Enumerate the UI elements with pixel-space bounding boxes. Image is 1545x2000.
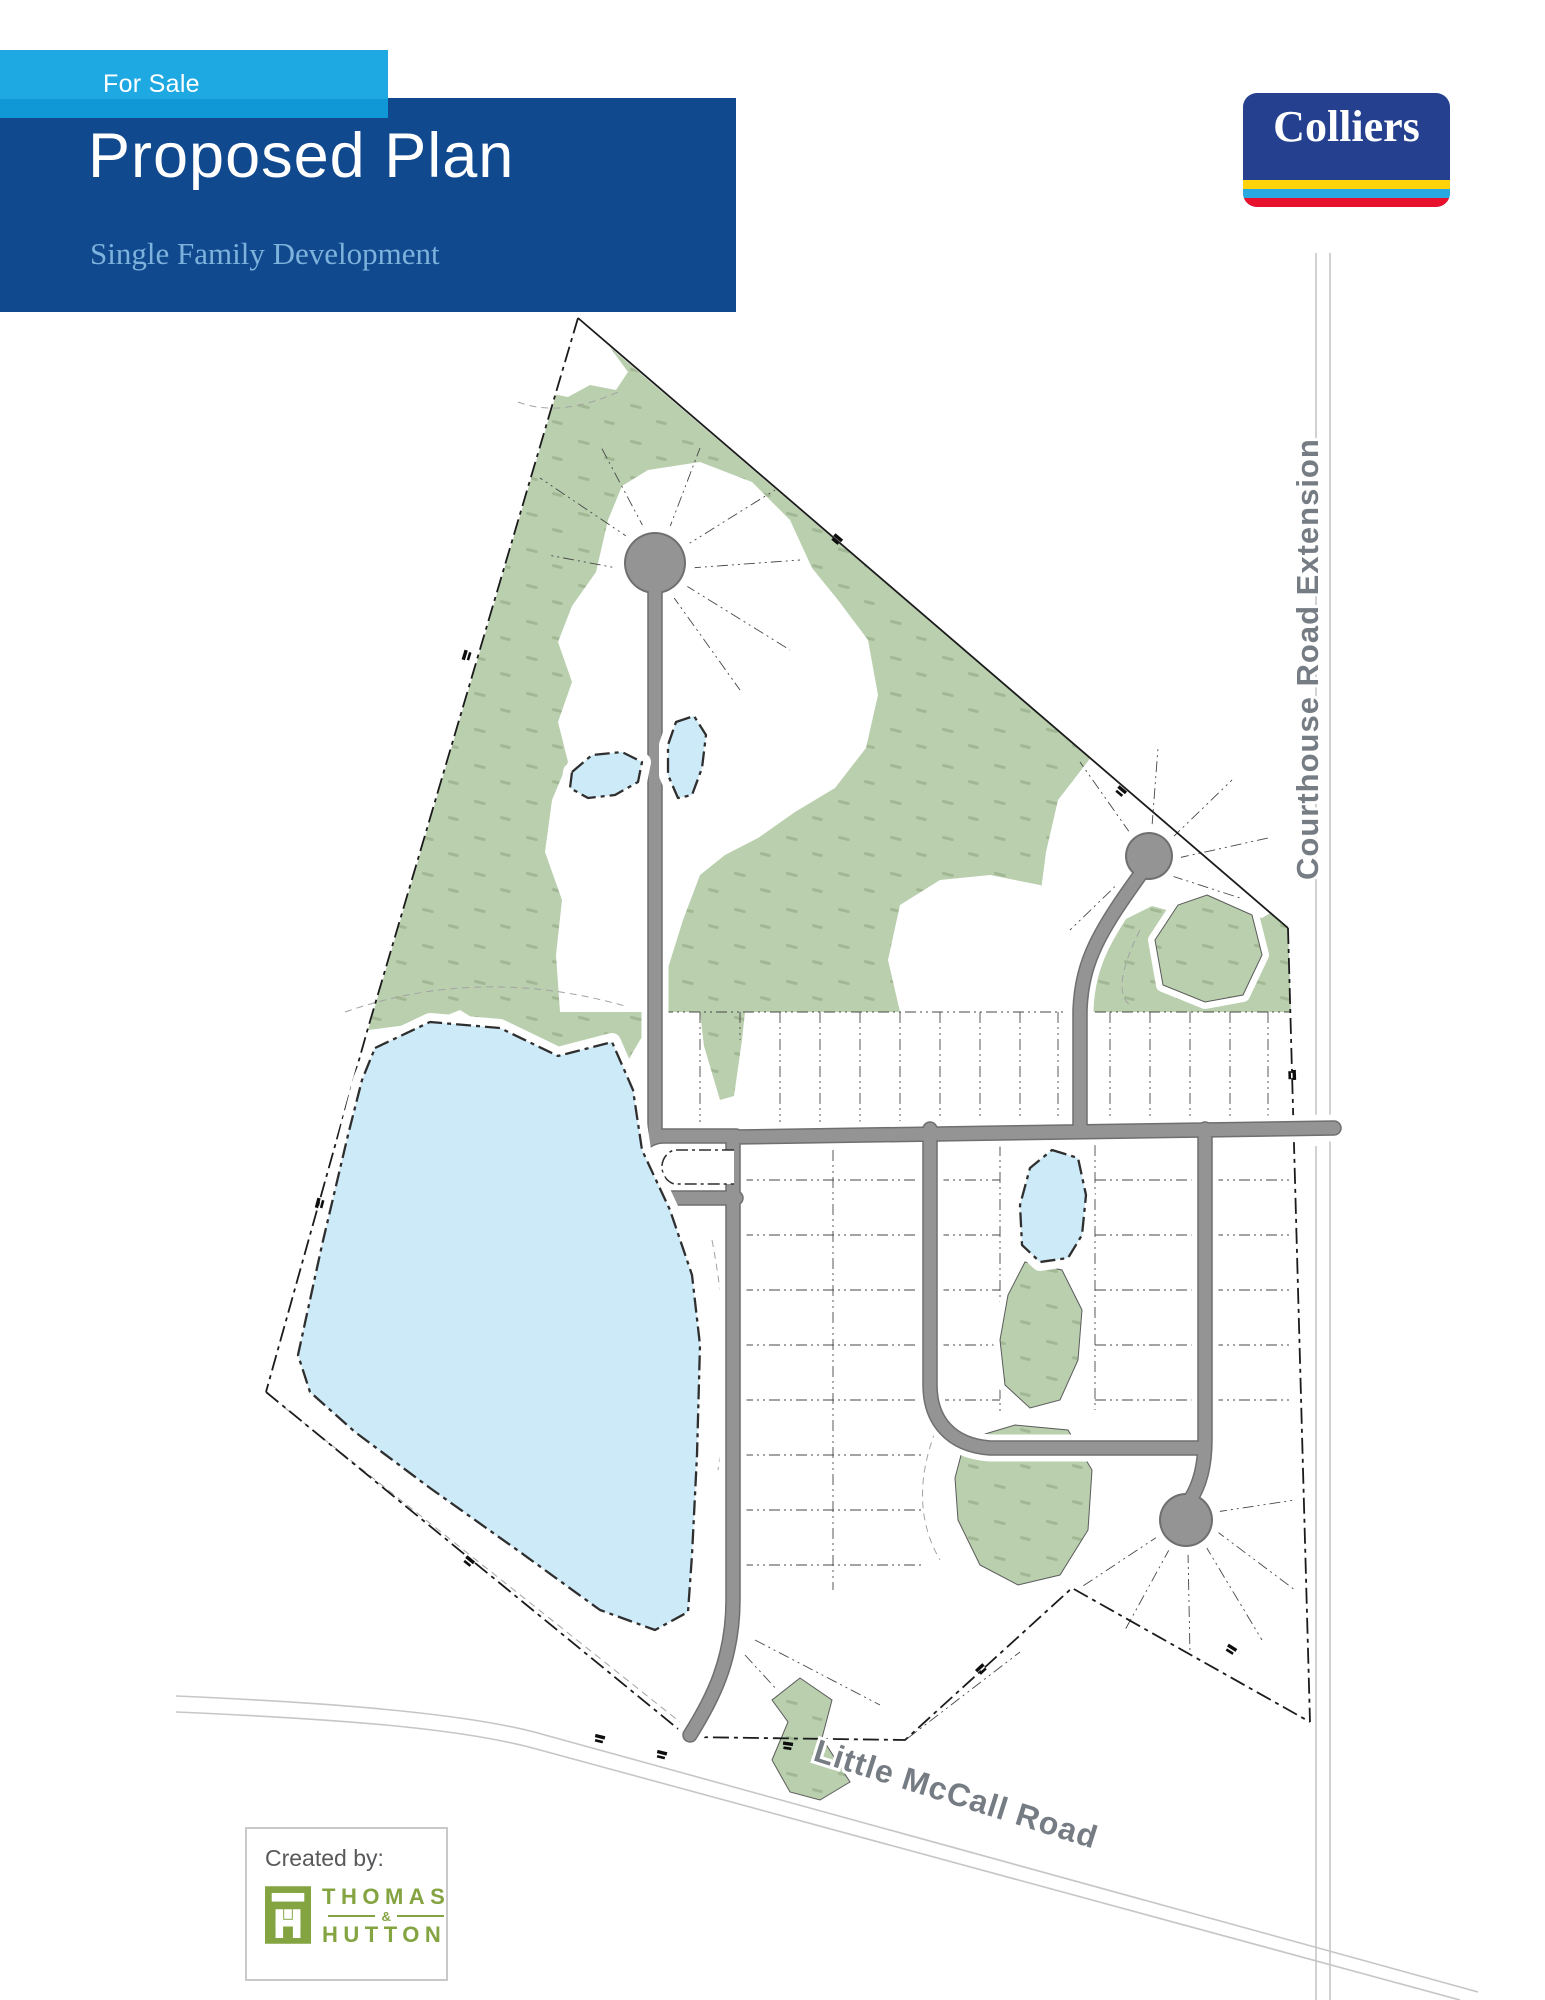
green-blobs: [772, 895, 1262, 1800]
ampersand-row: &: [322, 1909, 450, 1923]
for-sale-ribbon: For Sale: [0, 50, 388, 118]
for-sale-label: For Sale: [103, 70, 200, 99]
stripe-red: [1243, 198, 1450, 207]
thomas-label: THOMAS: [322, 1886, 450, 1908]
colliers-logo: Colliers: [1243, 93, 1450, 207]
turnaround-island: [662, 1150, 734, 1184]
pond-middle: [1020, 1150, 1086, 1262]
colliers-wordmark: Colliers: [1243, 101, 1450, 152]
page-title: Proposed Plan: [88, 120, 514, 192]
little-mccall-road-label: Little McCall Road: [810, 1732, 1103, 1855]
apex-notch: [509, 318, 628, 400]
hutton-label: HUTTON: [322, 1924, 450, 1946]
open-space-green-area: [368, 318, 1292, 1140]
courthouse-road-label: Courthouse Road Extension: [1290, 438, 1325, 880]
stripe-yellow: [1243, 180, 1450, 189]
thomas-hutton-monogram-icon: [265, 1886, 311, 1944]
created-by-label: Created by:: [265, 1845, 446, 1872]
cul-de-sac-northeast: [1127, 834, 1171, 878]
created-by-box: Created by: THOMAS & HUTTON: [245, 1827, 448, 1981]
cul-de-sac-north: [626, 534, 684, 592]
thomas-hutton-logo: THOMAS & HUTTON: [265, 1886, 446, 1946]
page-subtitle: Single Family Development: [90, 236, 440, 272]
colliers-stripes: [1243, 180, 1450, 207]
stripe-light-blue: [1243, 189, 1450, 198]
cul-de-sac-south: [1161, 1495, 1211, 1545]
flyer-page: Courthouse Road Extension Little McCall …: [0, 0, 1545, 2000]
